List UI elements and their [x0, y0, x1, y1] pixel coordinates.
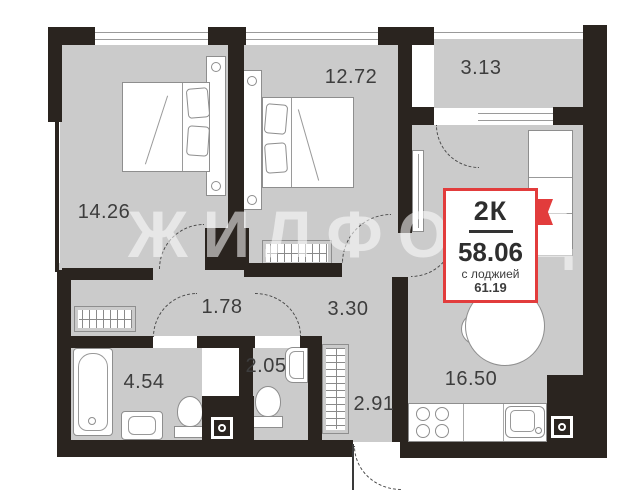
vent-icon — [211, 417, 233, 439]
loggia-floor — [434, 37, 583, 108]
wall — [48, 27, 62, 122]
toilet-icon — [177, 396, 203, 427]
pillow-icon — [186, 87, 211, 119]
floor-plan: 14.26 12.72 3.13 1.78 3.30 4.54 2.05 2.9… — [0, 0, 625, 496]
pillow-icon — [264, 142, 288, 173]
wall — [308, 336, 322, 457]
badge-divider — [469, 230, 513, 233]
headboard-icon — [242, 70, 262, 210]
stove-burner-icon — [416, 424, 430, 438]
room-label-bathroom: 4.54 — [124, 371, 165, 394]
wardrobe-icon — [322, 344, 349, 434]
loggia-glazing — [434, 27, 583, 39]
wall — [553, 107, 583, 125]
wall — [57, 270, 71, 457]
stove-burner-icon — [435, 424, 449, 438]
stove-burner-icon — [416, 407, 430, 421]
blanket-line — [291, 98, 292, 187]
room-label-bedroom-1: 14.26 — [78, 201, 131, 224]
pillow-icon — [186, 125, 210, 156]
bathtub-icon — [73, 348, 113, 436]
badge-area: 58.06 — [446, 239, 535, 265]
room-label-hallway: 1.78 — [202, 296, 243, 319]
room-label-entry-hall: 2.91 — [354, 393, 395, 416]
wall — [55, 122, 59, 272]
room-label-bedroom-2: 12.72 — [325, 66, 378, 89]
vent-icon — [551, 416, 573, 438]
toilet-tank — [252, 416, 283, 428]
sink-icon — [121, 411, 163, 440]
wall — [197, 336, 255, 348]
washbasin-icon — [285, 347, 308, 383]
room-label-corridor: 3.30 — [328, 298, 369, 321]
badge-rooms-type: 2К — [446, 198, 535, 225]
entry-door-arc — [354, 446, 401, 490]
blanket-line — [182, 83, 183, 171]
room-label-loggia: 3.13 — [461, 57, 502, 80]
area-badge: 2К 58.06 с лоджией 61.19 — [443, 188, 538, 303]
stove-burner-icon — [435, 407, 449, 421]
wall — [392, 277, 408, 442]
kitchen-sink-icon — [505, 406, 545, 438]
wall — [398, 107, 434, 125]
window — [478, 108, 553, 125]
room-label-wc: 2.05 — [246, 355, 287, 378]
window — [95, 27, 208, 45]
pillow-icon — [264, 103, 289, 135]
wall — [62, 336, 153, 348]
window — [246, 27, 378, 45]
coat-rack-icon — [74, 306, 136, 332]
badge-area-with-loggia: 61.19 — [446, 281, 535, 296]
room-label-kitchen-living: 16.50 — [445, 368, 498, 391]
entry-door-leaf — [352, 444, 354, 490]
toilet-tank — [174, 426, 205, 438]
toilet-icon — [255, 386, 281, 417]
